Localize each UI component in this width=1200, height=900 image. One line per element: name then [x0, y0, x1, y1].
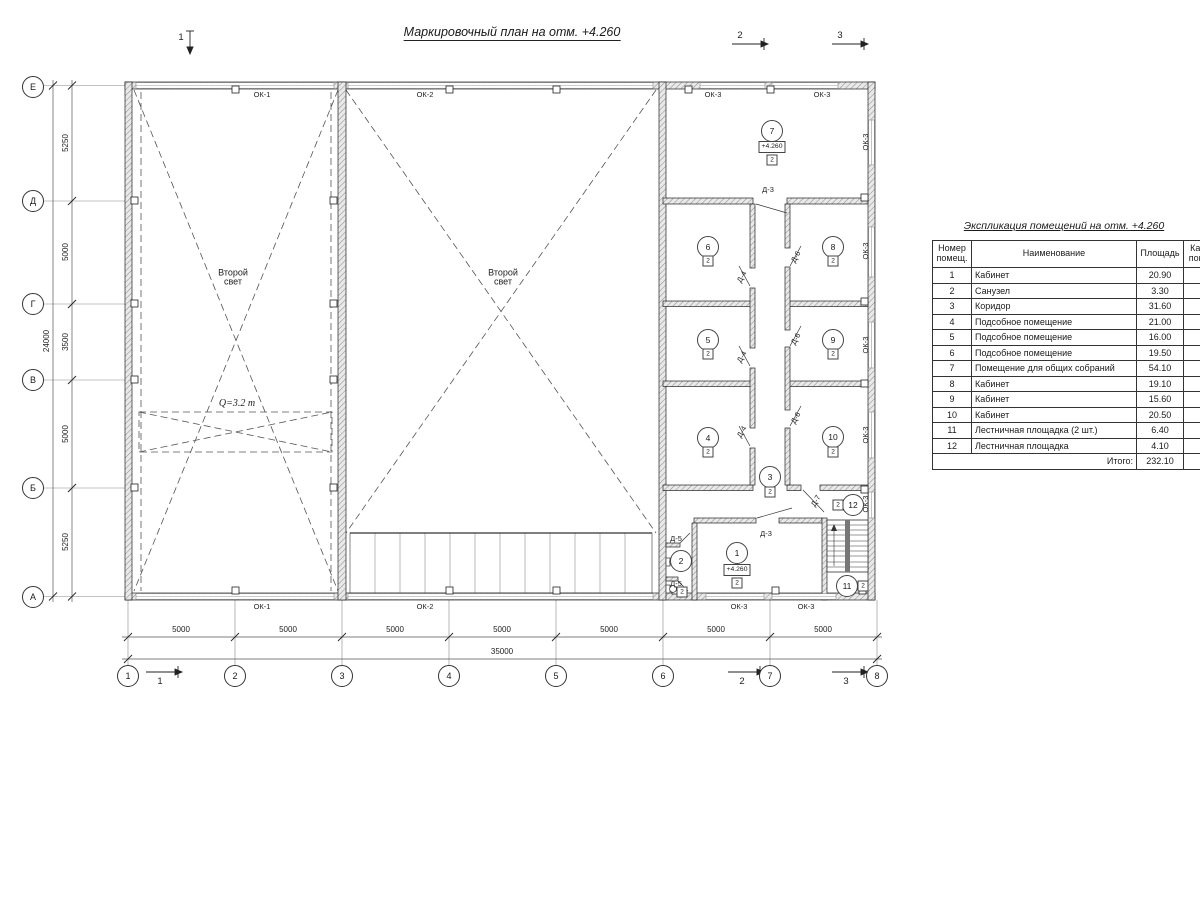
table-row: 3 Коридор 31.60: [933, 299, 1200, 315]
room-number-cell: 3: [933, 299, 972, 315]
room-category-cell: [1184, 345, 1200, 361]
dimension-label: 5000: [279, 626, 297, 634]
room-name-cell: Кабинет: [972, 392, 1137, 408]
door-label: Д-5: [670, 535, 682, 543]
axis-marker: 5: [545, 665, 567, 687]
window-label: ОК-3: [705, 91, 722, 99]
table-row: 12 Лестничная площадка 4.10: [933, 438, 1200, 454]
category-mark: 2: [765, 487, 776, 498]
category-mark: 2: [732, 578, 743, 589]
window-label: ОК-1: [254, 603, 271, 611]
room-number-cell: 8: [933, 376, 972, 392]
door-label: Д-3: [760, 530, 772, 538]
room-area-cell: 16.00: [1137, 330, 1184, 346]
section-label: 1: [157, 677, 162, 687]
table-header-row: Номер помещ. Наименование Площадь Кат. п…: [933, 241, 1200, 268]
total-label: Итого:: [933, 454, 1137, 470]
category-mark: 2: [703, 349, 714, 360]
room-name-cell: Подсобное помещение: [972, 330, 1137, 346]
axis-marker: Е: [22, 76, 44, 98]
dimension-label: 35000: [491, 648, 513, 656]
axis-marker: 2: [224, 665, 246, 687]
second-light-label: Второй свет: [218, 269, 248, 288]
room-number-cell: 7: [933, 361, 972, 377]
table-row: 7 Помещение для общих собраний 54.10: [933, 361, 1200, 377]
dashed-lines: [134, 90, 656, 591]
room-area-cell: 4.10: [1137, 438, 1184, 454]
table-body: 1 Кабинет 20.90 2 Санузел 3.30 3: [933, 268, 1200, 454]
table-row: 11 Лестничная площадка (2 шт.) 6.40: [933, 423, 1200, 439]
dimension-label: 5250: [62, 533, 70, 551]
dimension-label: 5000: [386, 626, 404, 634]
axis-marker: 6: [652, 665, 674, 687]
window-label: ОК-3: [862, 134, 870, 151]
section-label: 1: [178, 33, 183, 43]
window-label: ОК-3: [731, 603, 748, 611]
section-label: 2: [739, 677, 744, 687]
table-row: 6 Подсобное помещение 19.50: [933, 345, 1200, 361]
col-header-number: Номер помещ.: [933, 241, 972, 268]
axis-marker: А: [22, 586, 44, 608]
axis-marker: Д: [22, 190, 44, 212]
dimension-label: 5000: [62, 243, 70, 261]
total-value: 232.10: [1137, 454, 1184, 470]
category-mark: 2: [828, 256, 839, 267]
category-mark: 2: [703, 447, 714, 458]
room-name-cell: Коридор: [972, 299, 1137, 315]
room-area-cell: 6.40: [1137, 423, 1184, 439]
room-category-cell: [1184, 361, 1200, 377]
room-number-cell: 5: [933, 330, 972, 346]
table-row: 5 Подсобное помещение 16.00: [933, 330, 1200, 346]
axis-marker: В: [22, 369, 44, 391]
table-row: 1 Кабинет 20.90: [933, 268, 1200, 284]
category-mark: 2: [677, 587, 688, 598]
axis-marker: 8: [866, 665, 888, 687]
axis-marker: 3: [331, 665, 353, 687]
room-area-cell: 31.60: [1137, 299, 1184, 315]
dimension-label: 5000: [62, 425, 70, 443]
category-mark: 2: [703, 256, 714, 267]
room-number-cell: 10: [933, 407, 972, 423]
room-number-cell: 12: [933, 438, 972, 454]
room-number: 11: [836, 575, 858, 597]
axis-marker: 7: [759, 665, 781, 687]
section-label: 3: [837, 31, 842, 41]
section-label: 2: [737, 31, 742, 41]
axis-marker: Б: [22, 477, 44, 499]
room-name-cell: Кабинет: [972, 268, 1137, 284]
room-category-cell: [1184, 283, 1200, 299]
room-category-cell: [1184, 330, 1200, 346]
category-mark: 2: [833, 500, 844, 511]
col-header-name: Наименование: [972, 241, 1137, 268]
dimension-label: 5000: [814, 626, 832, 634]
room-number: 12: [842, 494, 864, 516]
table-row: 4 Подсобное помещение 21.00: [933, 314, 1200, 330]
col-header-area: Площадь: [1137, 241, 1184, 268]
room-number: 10: [822, 426, 844, 448]
room-category-cell: [1184, 268, 1200, 284]
category-mark: 2: [858, 581, 869, 592]
window-label: ОК-3: [862, 337, 870, 354]
table-row: 10 Кабинет 20.50: [933, 407, 1200, 423]
room-number: 3: [759, 466, 781, 488]
category-mark: 2: [767, 155, 778, 166]
crane-capacity-label: Q=3.2 т: [219, 399, 255, 410]
table-row: 8 Кабинет 19.10: [933, 376, 1200, 392]
window-label: ОК-3: [862, 427, 870, 444]
room-category-cell: [1184, 407, 1200, 423]
room-category-cell: [1184, 299, 1200, 315]
drawing-sheet: Маркировочный план на отм. +4.260: [0, 0, 1200, 900]
room-area-cell: 19.10: [1137, 376, 1184, 392]
room-category-cell: [1184, 438, 1200, 454]
room-name-cell: Санузел: [972, 283, 1137, 299]
staircase: [827, 520, 868, 572]
dimension-label: 5000: [493, 626, 511, 634]
window-label: ОК-3: [798, 603, 815, 611]
room-area-cell: 19.50: [1137, 345, 1184, 361]
dock-strip: [350, 533, 652, 593]
room-number-cell: 11: [933, 423, 972, 439]
dimension-label: 5000: [600, 626, 618, 634]
room-category-cell: [1184, 376, 1200, 392]
room-name-cell: Кабинет: [972, 407, 1137, 423]
explication-block: Экспликация помещений на отм. +4.260 Ном…: [932, 220, 1196, 470]
room-number-cell: 2: [933, 283, 972, 299]
window-label: ОК-3: [814, 91, 831, 99]
explication-table: Номер помещ. Наименование Площадь Кат. п…: [932, 240, 1200, 470]
room-name-cell: Помещение для общих собраний: [972, 361, 1137, 377]
axis-marker: 4: [438, 665, 460, 687]
dimension-label: 5000: [707, 626, 725, 634]
window-label: ОК-1: [254, 91, 271, 99]
dimension-label: 3500: [62, 333, 70, 351]
axis-marker: Г: [22, 293, 44, 315]
room-number-cell: 1: [933, 268, 972, 284]
dimension-label: 5250: [62, 134, 70, 152]
room-name-cell: Лестничная площадка: [972, 438, 1137, 454]
room-category-cell: [1184, 423, 1200, 439]
section-label: 3: [843, 677, 848, 687]
second-light-label: Второй свет: [488, 269, 518, 288]
elevation-mark: +4.260: [724, 564, 751, 576]
window-label: ОК-2: [417, 91, 434, 99]
door-label: Д-3: [762, 186, 774, 194]
windows: [136, 83, 874, 600]
explication-title: Экспликация помещений на отм. +4.260: [932, 220, 1196, 232]
room-number: 2: [670, 550, 692, 572]
category-mark: 2: [828, 349, 839, 360]
room-area-cell: 3.30: [1137, 283, 1184, 299]
category-mark: 2: [828, 447, 839, 458]
walls: [125, 82, 875, 600]
elevation-mark: +4.260: [759, 141, 786, 153]
window-label: ОК-2: [417, 603, 434, 611]
room-area-cell: 21.00: [1137, 314, 1184, 330]
room-area-cell: 20.50: [1137, 407, 1184, 423]
room-name-cell: Лестничная площадка (2 шт.): [972, 423, 1137, 439]
room-number: 1: [726, 542, 748, 564]
room-name-cell: Подсобное помещение: [972, 345, 1137, 361]
axis-marker: 1: [117, 665, 139, 687]
room-category-cell: [1184, 392, 1200, 408]
room-number-cell: 9: [933, 392, 972, 408]
room-number-cell: 4: [933, 314, 972, 330]
table-row: 9 Кабинет 15.60: [933, 392, 1200, 408]
col-header-category: Кат. пом.: [1184, 241, 1200, 268]
room-area-cell: 20.90: [1137, 268, 1184, 284]
total-category-cell: [1184, 454, 1200, 470]
room-name-cell: Кабинет: [972, 376, 1137, 392]
dimension-label: 24000: [43, 330, 51, 352]
table-row: 2 Санузел 3.30: [933, 283, 1200, 299]
room-number: 7: [761, 120, 783, 142]
dimension-label: 5000: [172, 626, 190, 634]
window-label: ОК-3: [862, 243, 870, 260]
room-number-cell: 6: [933, 345, 972, 361]
room-name-cell: Подсобное помещение: [972, 314, 1137, 330]
room-area-cell: 54.10: [1137, 361, 1184, 377]
room-category-cell: [1184, 314, 1200, 330]
room-area-cell: 15.60: [1137, 392, 1184, 408]
table-total-row: Итого: 232.10: [933, 454, 1200, 470]
